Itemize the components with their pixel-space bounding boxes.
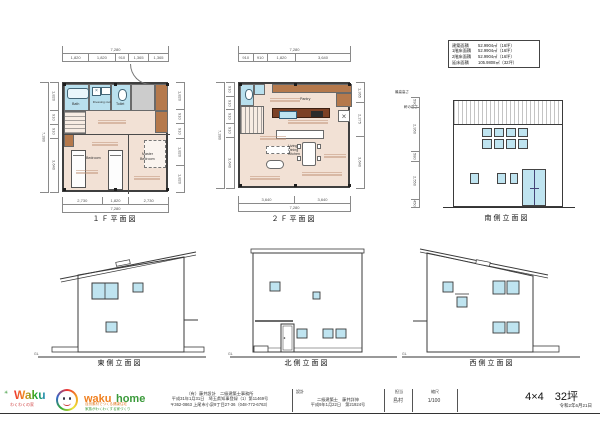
floor-hatch: [260, 136, 286, 141]
east-wall: [78, 257, 184, 352]
divider: [457, 389, 458, 412]
porch-step: [52, 347, 78, 352]
floor-hatch: [288, 120, 328, 125]
bathtub-icon: [67, 88, 89, 99]
post: [294, 83, 297, 86]
toilet-icon: [245, 89, 253, 100]
floor-hatch: [270, 98, 300, 103]
window: [313, 292, 320, 299]
post: [166, 83, 169, 86]
dim-segment: 2,275: [356, 102, 364, 135]
chair: [317, 156, 321, 161]
elevation-south-title: 南側立面図: [457, 213, 557, 223]
elevation-west-drawing: [400, 245, 590, 370]
elevation-north-drawing: [225, 245, 405, 370]
dim-segment: 1,365: [148, 54, 168, 61]
post: [294, 184, 297, 187]
dim-segment: 910: [226, 82, 234, 96]
gl-label: GL: [402, 352, 407, 356]
dim-segment: 7,280: [238, 46, 350, 53]
dim-segment: 910: [226, 123, 234, 137]
west-wall: [427, 253, 533, 352]
closet: [155, 111, 168, 133]
washer-icon: ×: [92, 87, 101, 96]
dim-1f-top-segments: 1,820 1,820 910 1,365 1,365: [62, 54, 169, 62]
bed: [71, 150, 86, 188]
office-address: 〒362-0863 上尾市小泉9丁目27-36（048-772-6763）: [150, 402, 290, 407]
dim-segment: 7,280: [216, 82, 224, 188]
window: [133, 283, 143, 292]
wall: [128, 134, 129, 194]
post: [114, 83, 117, 86]
sink-icon: [101, 87, 111, 95]
post: [114, 188, 117, 191]
window: [457, 297, 467, 307]
elevation-north-title: 北側立面図: [247, 358, 367, 368]
designer-info: 二級建築士 藤井詳伸 平成9年1月22日 第21924号: [294, 397, 382, 408]
smiley-logo-icon: [56, 389, 78, 411]
dim-segment: 1,820: [50, 82, 58, 110]
divider: [384, 389, 385, 412]
ground-line: [443, 207, 575, 208]
toilet-icon: [118, 89, 127, 101]
scale-header: 縮尺: [416, 389, 454, 395]
window: [507, 281, 519, 294]
elevation-west-title: 西側立面図: [432, 358, 552, 368]
door-handle-icon: [530, 188, 539, 189]
room-label: Pantry: [300, 97, 310, 101]
dim-2f-bottom-segments: 3,640 3,640: [238, 196, 351, 204]
porch-step: [533, 346, 559, 352]
rug: [266, 160, 284, 169]
dim-segment: 910: [115, 54, 129, 61]
cooktop-icon: [311, 111, 323, 117]
parapet-siding: [454, 101, 562, 125]
floor-hatch: [92, 142, 118, 147]
dim-1f-top-total: 7,280: [62, 46, 169, 54]
room-genkan: [131, 84, 155, 111]
dim-segment: 1,820: [88, 54, 114, 61]
dim-segment: 1,820: [176, 82, 184, 109]
dim-2f-top-total: 7,280: [238, 46, 351, 54]
area-value: 105.9808㎡（32坪）: [478, 60, 517, 66]
room-label: Dressing room: [93, 100, 113, 103]
titleblock-rule: [0, 413, 600, 414]
porch-step: [254, 346, 268, 352]
dim-segment: 1,820: [176, 165, 184, 192]
post: [63, 83, 66, 86]
office-info: （有）藤井設計 二級建築士事務所 平成31年1月31日 埼玉県知事登録（1）第1…: [150, 391, 290, 407]
kitchen-back-counter: [272, 84, 352, 93]
dim-segment: 580: [411, 151, 419, 161]
window: [510, 173, 518, 184]
elevation-east-title: 東側立面図: [62, 358, 178, 368]
dim-segment: 450: [411, 199, 419, 207]
logo-waku: Waku: [14, 388, 46, 402]
dim-segment: 1,365: [356, 82, 364, 102]
closet: [155, 84, 168, 111]
scale-value: 1/100: [414, 399, 454, 404]
dim-2f-left-total: 7,280: [216, 82, 225, 189]
dim-segment: 7,280: [238, 204, 350, 211]
designer-license: 平成9年1月22日 第21924号: [294, 402, 382, 407]
door-swing-icon: [130, 64, 151, 85]
dim-segment: 590: [411, 97, 419, 107]
window: [497, 173, 506, 184]
dim-2f-bottom-total: 7,280: [238, 204, 351, 212]
dim-1f-bottom-total: 7,280: [62, 205, 169, 213]
dim-1f-right-segments: 1,820 910 910 1,820 1,820: [176, 82, 185, 193]
post: [239, 83, 242, 86]
dim-segment: 2,730: [62, 197, 102, 204]
project-title: 4×4 32坪: [460, 388, 578, 404]
divider: [412, 389, 413, 412]
staff-name: 島村: [386, 399, 410, 404]
dim-segment: 3,640: [50, 138, 58, 192]
window: [518, 139, 528, 149]
chair: [317, 144, 321, 149]
dim-segment: 910: [50, 124, 58, 138]
window: [493, 281, 505, 294]
window: [443, 282, 453, 292]
room-label: Kitchen: [288, 152, 300, 156]
shaft-icon: ×: [338, 110, 350, 122]
window: [270, 282, 280, 291]
window: [106, 322, 117, 332]
floor-hatch: [98, 120, 126, 125]
post: [348, 184, 351, 187]
logo-tagline: 家族がわくわくする家づくり: [85, 407, 131, 412]
kitchen-sink-icon: [279, 111, 297, 119]
porch-step: [184, 347, 204, 352]
dim-segment: 3,640: [238, 196, 294, 203]
window: [494, 128, 504, 137]
floorplan-1f: Bath × Dressing room Toilet Bedroom Mast: [62, 82, 168, 192]
window: [336, 329, 346, 338]
stairs: [64, 111, 86, 134]
dim-segment: 3,640: [295, 54, 350, 61]
floor-hatch: [302, 172, 342, 177]
logo-subtext: わくわくの家: [10, 402, 34, 408]
dim-segment: 1,365: [128, 54, 148, 61]
room-toilet-2f: [240, 84, 254, 106]
chair: [297, 156, 301, 161]
door-handle-icon: [284, 337, 286, 339]
dim-segment: 910: [226, 96, 234, 110]
dim-1f-left-segments: 1,820 910 910 3,640: [50, 82, 59, 193]
closet: [336, 93, 352, 107]
dim-segment: 1,820: [62, 54, 88, 61]
window: [482, 139, 492, 149]
dim-segment: 3,640: [356, 136, 364, 189]
dim-segment: 3,640: [294, 196, 350, 203]
floor-hatch: [324, 154, 346, 159]
dim-2f-right-segments: 1,365 2,275 3,640: [356, 82, 365, 189]
washbasin: [254, 84, 265, 95]
wall: [64, 134, 170, 135]
window: [494, 139, 504, 149]
elevation-east-drawing: [30, 245, 210, 370]
post: [63, 188, 66, 191]
room-toilet: Toilet: [111, 84, 131, 111]
window: [323, 329, 333, 338]
divider: [292, 389, 293, 412]
staff-header: 担当: [388, 389, 410, 395]
floor-hatch: [250, 176, 280, 181]
dim-south-segments: 590 2,950 580 2,550 450: [411, 97, 420, 208]
closet: [64, 134, 74, 147]
dining-table: [302, 142, 316, 166]
bed: [108, 150, 123, 190]
stairs: [240, 106, 264, 134]
area-table: 建築面積 52.9904㎡（16坪） 1階床面積 52.9904㎡（16坪） 2…: [448, 40, 540, 68]
window: [507, 322, 519, 333]
bench: [266, 146, 290, 154]
floor-hatch: [76, 170, 98, 175]
floor-hatch: [134, 176, 160, 181]
dim-2f-top-segments: 910 910 1,820 3,640: [238, 54, 351, 62]
window: [506, 139, 516, 149]
dim-segment: 1,820: [102, 197, 129, 204]
window: [518, 128, 528, 137]
dim-label-max-height: 最高高さ: [395, 90, 409, 95]
window: [297, 329, 307, 338]
floorplan-2f: Pantry × Living Dining Kitchen: [238, 82, 350, 188]
dim-segment: 910: [253, 54, 268, 61]
window: [470, 173, 479, 184]
gl-label: GL: [34, 352, 39, 356]
south-wall: [453, 100, 563, 207]
room-bath: Bath: [64, 84, 89, 111]
window: [506, 128, 516, 137]
post: [166, 188, 169, 191]
gl-label: GL: [228, 352, 233, 356]
room-label: Bedroom: [86, 156, 101, 160]
dim-segment: 2,730: [128, 197, 168, 204]
room-label: Bedroom: [140, 157, 155, 161]
room-dressing: × Dressing room: [89, 84, 111, 111]
design-header: 設計: [296, 389, 304, 395]
dim-segment: 3,640: [226, 137, 234, 189]
dim-segment: 7,280: [62, 46, 168, 53]
parapet-cap: [251, 249, 364, 253]
post: [348, 83, 351, 86]
logo-star-icon: ✳: [4, 390, 8, 396]
window: [482, 128, 492, 137]
room-label: Bath: [72, 102, 79, 106]
entry-door: [522, 169, 546, 206]
dim-segment: 7,280: [62, 205, 168, 212]
dim-1f-bottom-segments: 2,730 1,820 2,730: [62, 197, 169, 205]
dim-segment: 7,280: [40, 82, 48, 192]
table-row: 延床面積 105.9808㎡（32坪）: [452, 60, 536, 66]
dim-segment: 910: [176, 109, 184, 123]
sheet-date: 令和2年6月21日: [460, 403, 592, 409]
dim-segment: 2,950: [411, 107, 419, 151]
post: [239, 184, 242, 187]
dim-segment: 2,550: [411, 161, 419, 200]
plan-1f-title: １Ｆ平面図: [62, 214, 168, 224]
room-label: Toilet: [116, 102, 124, 106]
dim-segment: 910: [226, 109, 234, 123]
dim-segment: 910: [50, 110, 58, 124]
plan-2f-title: ２Ｆ平面図: [238, 214, 350, 224]
room-label: Master: [142, 152, 153, 156]
kitchen-counter: [272, 108, 330, 118]
window: [493, 322, 505, 333]
elevation-south: 最高高さ 軒の高さ 590 2,950 580 2,550 450: [395, 85, 585, 225]
area-label: 延床面積: [452, 60, 478, 66]
dim-segment: 1,820: [267, 54, 295, 61]
drawing-sheet: 7,280 1,820 1,820 910 1,365 1,365 7,280 …: [0, 0, 600, 425]
dim-segment: 910: [176, 123, 184, 137]
dim-1f-left-total: 7,280: [40, 82, 49, 193]
dim-segment: 910: [238, 54, 253, 61]
dim-segment: 1,820: [176, 138, 184, 165]
dim-2f-left-segments: 910 910 910 910 3,640: [226, 82, 235, 189]
